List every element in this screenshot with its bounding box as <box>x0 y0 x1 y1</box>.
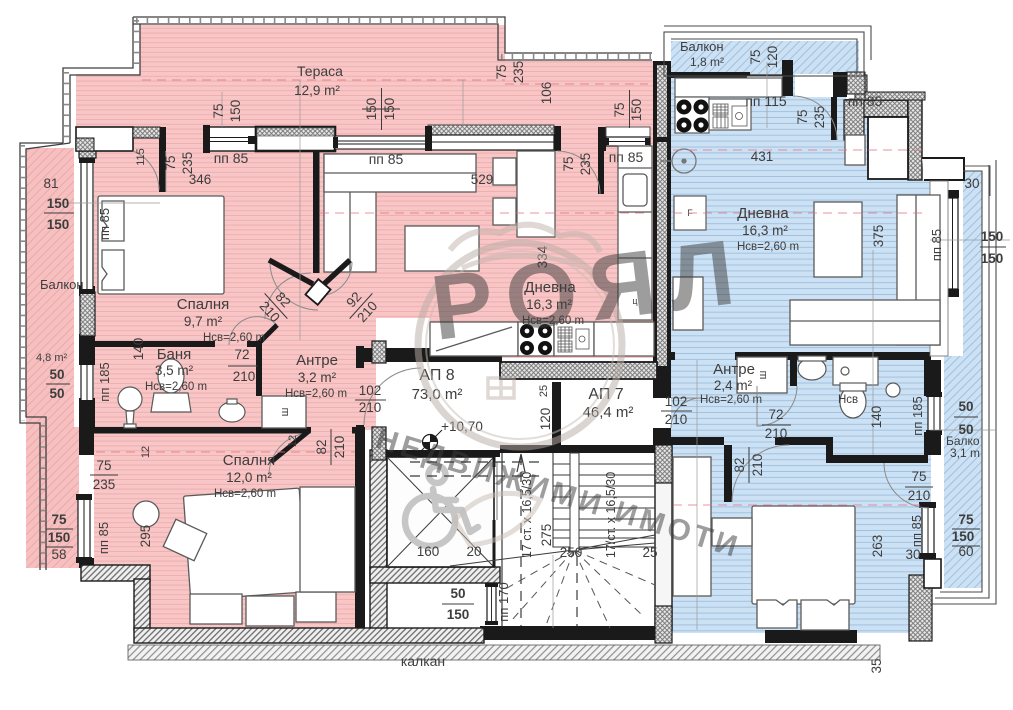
svg-text:Спалня: Спалня <box>177 296 229 313</box>
svg-text:пп 185: пп 185 <box>910 396 925 435</box>
svg-text:75: 75 <box>795 109 810 124</box>
svg-text:Нсв=2,60 m: Нсв=2,60 m <box>285 388 347 400</box>
svg-text:235: 235 <box>180 152 195 175</box>
svg-text:75: 75 <box>958 512 974 527</box>
svg-text:150: 150 <box>981 251 1004 266</box>
svg-text:Нсв=2,60 m: Нсв=2,60 m <box>203 332 265 344</box>
svg-text:пп 115: пп 115 <box>745 93 787 109</box>
svg-text:12,0 m²: 12,0 m² <box>226 470 272 485</box>
svg-text:пп 170: пп 170 <box>496 582 511 621</box>
svg-text:72: 72 <box>768 407 783 422</box>
svg-text:75: 75 <box>96 458 111 473</box>
svg-text:1,8 m²: 1,8 m² <box>690 55 724 69</box>
svg-text:210: 210 <box>233 369 256 384</box>
svg-text:16,3 m²: 16,3 m² <box>742 223 788 238</box>
svg-text:75: 75 <box>911 469 926 484</box>
svg-text:50: 50 <box>450 586 465 601</box>
svg-text:50: 50 <box>958 422 973 437</box>
svg-text:375: 375 <box>871 225 886 248</box>
svg-text:3,1 m: 3,1 m <box>950 446 980 460</box>
svg-text:150: 150 <box>48 530 71 545</box>
svg-text:Нсв=2,60 m: Нсв=2,60 m <box>737 241 799 253</box>
svg-text:Баня: Баня <box>157 346 192 363</box>
svg-text:пп 85: пп 85 <box>96 522 111 554</box>
svg-text:275: 275 <box>539 524 554 547</box>
svg-text:калкан: калкан <box>401 653 445 669</box>
svg-text:210: 210 <box>359 400 382 415</box>
svg-text:235: 235 <box>812 106 827 129</box>
svg-text:50: 50 <box>958 399 973 414</box>
svg-text:2,4 m²: 2,4 m² <box>714 378 753 393</box>
svg-text:Тераса: Тераса <box>297 63 343 79</box>
svg-text:75: 75 <box>163 155 178 170</box>
svg-text:9,7 m²: 9,7 m² <box>184 314 223 329</box>
svg-text:50: 50 <box>49 367 64 382</box>
svg-text:120: 120 <box>765 46 780 69</box>
svg-text:150: 150 <box>228 100 243 123</box>
svg-text:Нсв=2,60 m: Нсв=2,60 m <box>700 394 762 406</box>
svg-text:50: 50 <box>49 386 64 401</box>
svg-text:75: 75 <box>561 156 576 171</box>
svg-text:150: 150 <box>447 607 470 622</box>
svg-text:235: 235 <box>578 153 593 176</box>
svg-text:210: 210 <box>765 426 788 441</box>
svg-text:30: 30 <box>964 176 979 191</box>
svg-text:Нсв: Нсв <box>838 394 858 406</box>
svg-text:75: 75 <box>494 64 509 79</box>
svg-text:пп 85: пп 85 <box>848 93 883 109</box>
svg-text:30: 30 <box>905 547 920 562</box>
svg-text:12: 12 <box>140 446 152 458</box>
svg-text:82: 82 <box>732 457 747 472</box>
svg-text:Антре: Антре <box>713 361 755 378</box>
svg-text:140: 140 <box>131 338 146 361</box>
svg-text:263: 263 <box>870 535 885 558</box>
svg-text:пп 185: пп 185 <box>97 362 112 401</box>
svg-text:ш: ш <box>279 407 291 416</box>
svg-text:пп 85: пп 85 <box>929 229 944 261</box>
svg-text:35: 35 <box>869 658 884 673</box>
svg-text:140: 140 <box>869 406 884 429</box>
svg-text:пп 85: пп 85 <box>369 151 404 167</box>
svg-text:пп 85: пп 85 <box>909 515 924 547</box>
svg-text:4,8 m²: 4,8 m² <box>36 352 68 364</box>
svg-text:58: 58 <box>51 547 66 562</box>
svg-text:пп 85: пп 85 <box>97 208 112 240</box>
svg-text:75: 75 <box>211 103 226 118</box>
svg-text:Нсв=2,60 m: Нсв=2,60 m <box>145 381 207 393</box>
svg-text:115: 115 <box>135 148 147 166</box>
svg-text:3,2 m²: 3,2 m² <box>298 370 337 385</box>
svg-text:150: 150 <box>47 196 70 211</box>
svg-text:12,9 m²: 12,9 m² <box>294 83 340 98</box>
svg-text:25: 25 <box>642 545 657 560</box>
svg-text:81: 81 <box>43 176 58 191</box>
svg-text:пп 85: пп 85 <box>609 149 644 165</box>
svg-text:250: 250 <box>560 545 583 560</box>
svg-text:431: 431 <box>751 149 774 164</box>
svg-text:210: 210 <box>750 454 765 477</box>
svg-text:210: 210 <box>908 488 931 503</box>
svg-text:25: 25 <box>538 385 550 397</box>
svg-text:Балкон: Балкон <box>680 39 724 54</box>
svg-text:75: 75 <box>612 102 627 117</box>
svg-text:пп 85: пп 85 <box>214 150 249 166</box>
svg-text:106: 106 <box>539 82 554 105</box>
svg-text:150: 150 <box>952 529 975 544</box>
svg-text:102: 102 <box>359 383 382 398</box>
svg-text:295: 295 <box>138 525 153 548</box>
svg-text:120: 120 <box>538 408 553 431</box>
svg-text:3,5 m²: 3,5 m² <box>155 363 194 378</box>
svg-text:Дневна: Дневна <box>737 205 789 222</box>
svg-text:160: 160 <box>417 544 440 559</box>
svg-text:150: 150 <box>47 217 70 232</box>
svg-text:75: 75 <box>51 512 67 527</box>
svg-text:72: 72 <box>234 347 249 362</box>
svg-text:75: 75 <box>748 49 763 64</box>
svg-text:ш: ш <box>757 370 769 379</box>
svg-text:Антре: Антре <box>296 352 338 369</box>
svg-text:102: 102 <box>665 394 688 409</box>
svg-text:12: 12 <box>287 435 299 447</box>
svg-text:529: 529 <box>471 172 494 187</box>
svg-text:210: 210 <box>665 412 688 427</box>
svg-text:150: 150 <box>629 99 644 122</box>
svg-text:Спалня: Спалня <box>223 452 275 469</box>
svg-text:235: 235 <box>93 477 116 492</box>
svg-text:Нсв=2,60 m: Нсв=2,60 m <box>214 488 276 500</box>
svg-text:150: 150 <box>981 229 1004 244</box>
svg-text:82: 82 <box>314 439 329 454</box>
svg-text:235: 235 <box>511 61 526 84</box>
svg-text:210: 210 <box>332 436 347 459</box>
svg-text:Балкон: Балкон <box>40 277 84 292</box>
